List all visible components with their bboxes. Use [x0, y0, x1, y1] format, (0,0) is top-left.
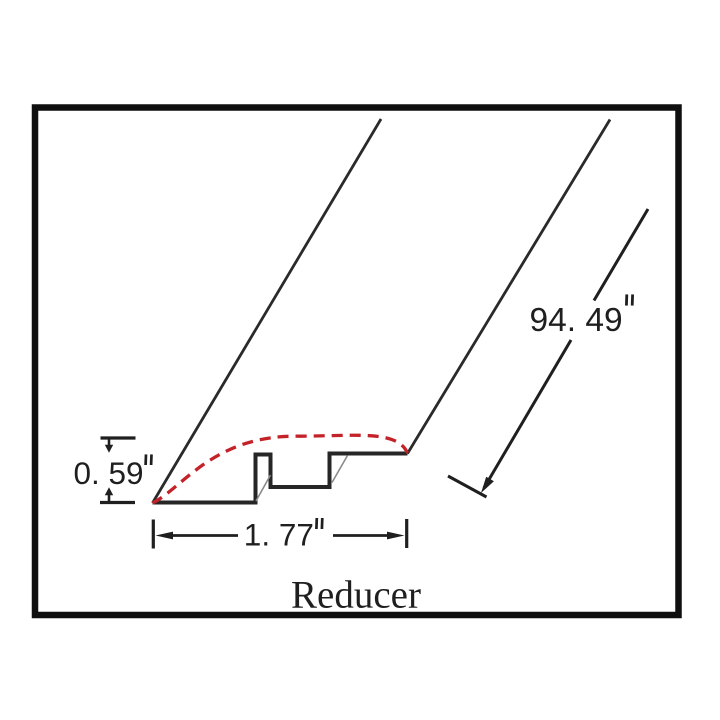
svg-text:0. 59: 0. 59 [74, 455, 144, 491]
svg-text:Reducer: Reducer [291, 574, 421, 617]
svg-text:94. 49: 94. 49 [530, 302, 623, 339]
svg-text:1. 77: 1. 77 [244, 517, 314, 553]
